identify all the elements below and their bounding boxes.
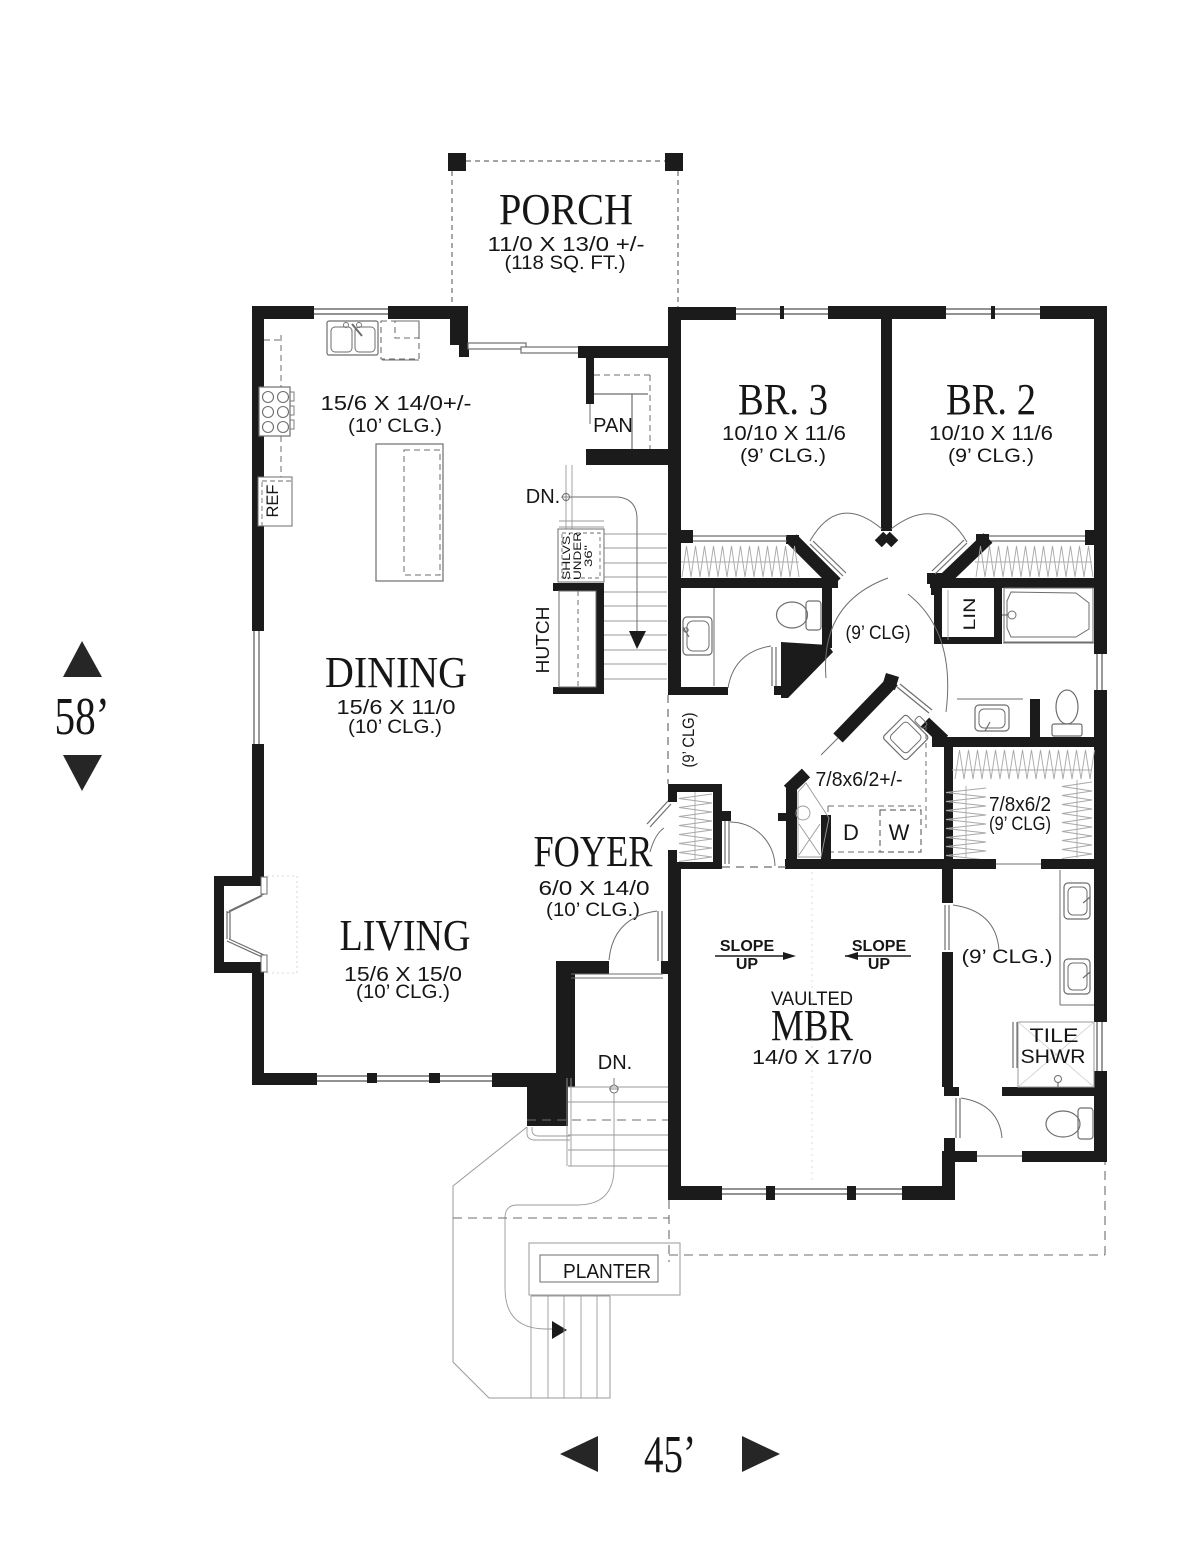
svg-text:MBR: MBR: [771, 1001, 854, 1050]
svg-text:10/10 X 11/6: 10/10 X 11/6: [929, 423, 1053, 445]
svg-text:(9’ CLG.): (9’ CLG.): [948, 446, 1034, 467]
svg-text:FOYER: FOYER: [534, 827, 654, 876]
svg-text:6/0 X 14/0: 6/0 X 14/0: [539, 878, 650, 900]
svg-text:TILE: TILE: [1030, 1026, 1079, 1047]
svg-text:(10’ CLG.): (10’ CLG.): [356, 982, 450, 1003]
svg-text:(10’ CLG.): (10’ CLG.): [348, 717, 442, 738]
svg-text:PORCH: PORCH: [499, 185, 633, 234]
svg-text:(9’ CLG.): (9’ CLG.): [740, 446, 826, 467]
svg-text:W: W: [889, 820, 910, 845]
svg-text:SLOPE: SLOPE: [852, 938, 907, 955]
svg-text:7/8x6/2+/-: 7/8x6/2+/-: [816, 769, 903, 791]
svg-text:45’: 45’: [644, 1426, 696, 1484]
svg-text:UP: UP: [868, 956, 891, 973]
svg-text:(9’ CLG): (9’ CLG): [989, 814, 1051, 835]
svg-text:DN.: DN.: [598, 1052, 632, 1074]
svg-text:BR. 3: BR. 3: [738, 375, 828, 424]
svg-text:7/8x6/2: 7/8x6/2: [989, 794, 1051, 816]
svg-text:UP: UP: [736, 956, 759, 973]
svg-text:(10’ CLG.): (10’ CLG.): [348, 416, 442, 437]
svg-text:(118 SQ. FT.): (118 SQ. FT.): [505, 253, 626, 274]
svg-text:(9’ CLG): (9’ CLG): [679, 713, 698, 768]
svg-text:10/10 X 11/6: 10/10 X 11/6: [722, 423, 846, 445]
svg-text:(9’ CLG): (9’ CLG): [846, 623, 911, 644]
svg-text:HUTCH: HUTCH: [533, 607, 553, 674]
svg-text:58’: 58’: [55, 688, 110, 746]
svg-text:(9’ CLG.): (9’ CLG.): [962, 947, 1053, 968]
svg-text:15/6 X 11/0: 15/6 X 11/0: [337, 697, 456, 719]
svg-text:PLANTER: PLANTER: [563, 1261, 651, 1283]
svg-text:LIVING: LIVING: [340, 911, 471, 960]
svg-text:PAN: PAN: [593, 415, 633, 437]
svg-text:SHWR: SHWR: [1021, 1047, 1086, 1068]
svg-text:DINING: DINING: [325, 648, 467, 697]
svg-text:LIN: LIN: [960, 598, 979, 631]
svg-text:15/6 X 14/0+/-: 15/6 X 14/0+/-: [321, 393, 472, 415]
svg-text:BR. 2: BR. 2: [946, 375, 1036, 424]
svg-text:(10’ CLG.): (10’ CLG.): [546, 900, 640, 921]
svg-text:REF: REF: [263, 485, 282, 518]
svg-text:SLOPE: SLOPE: [720, 938, 775, 955]
svg-text:D: D: [843, 820, 859, 845]
svg-text:DN.: DN.: [526, 486, 560, 508]
svg-text:36": 36": [583, 545, 595, 567]
